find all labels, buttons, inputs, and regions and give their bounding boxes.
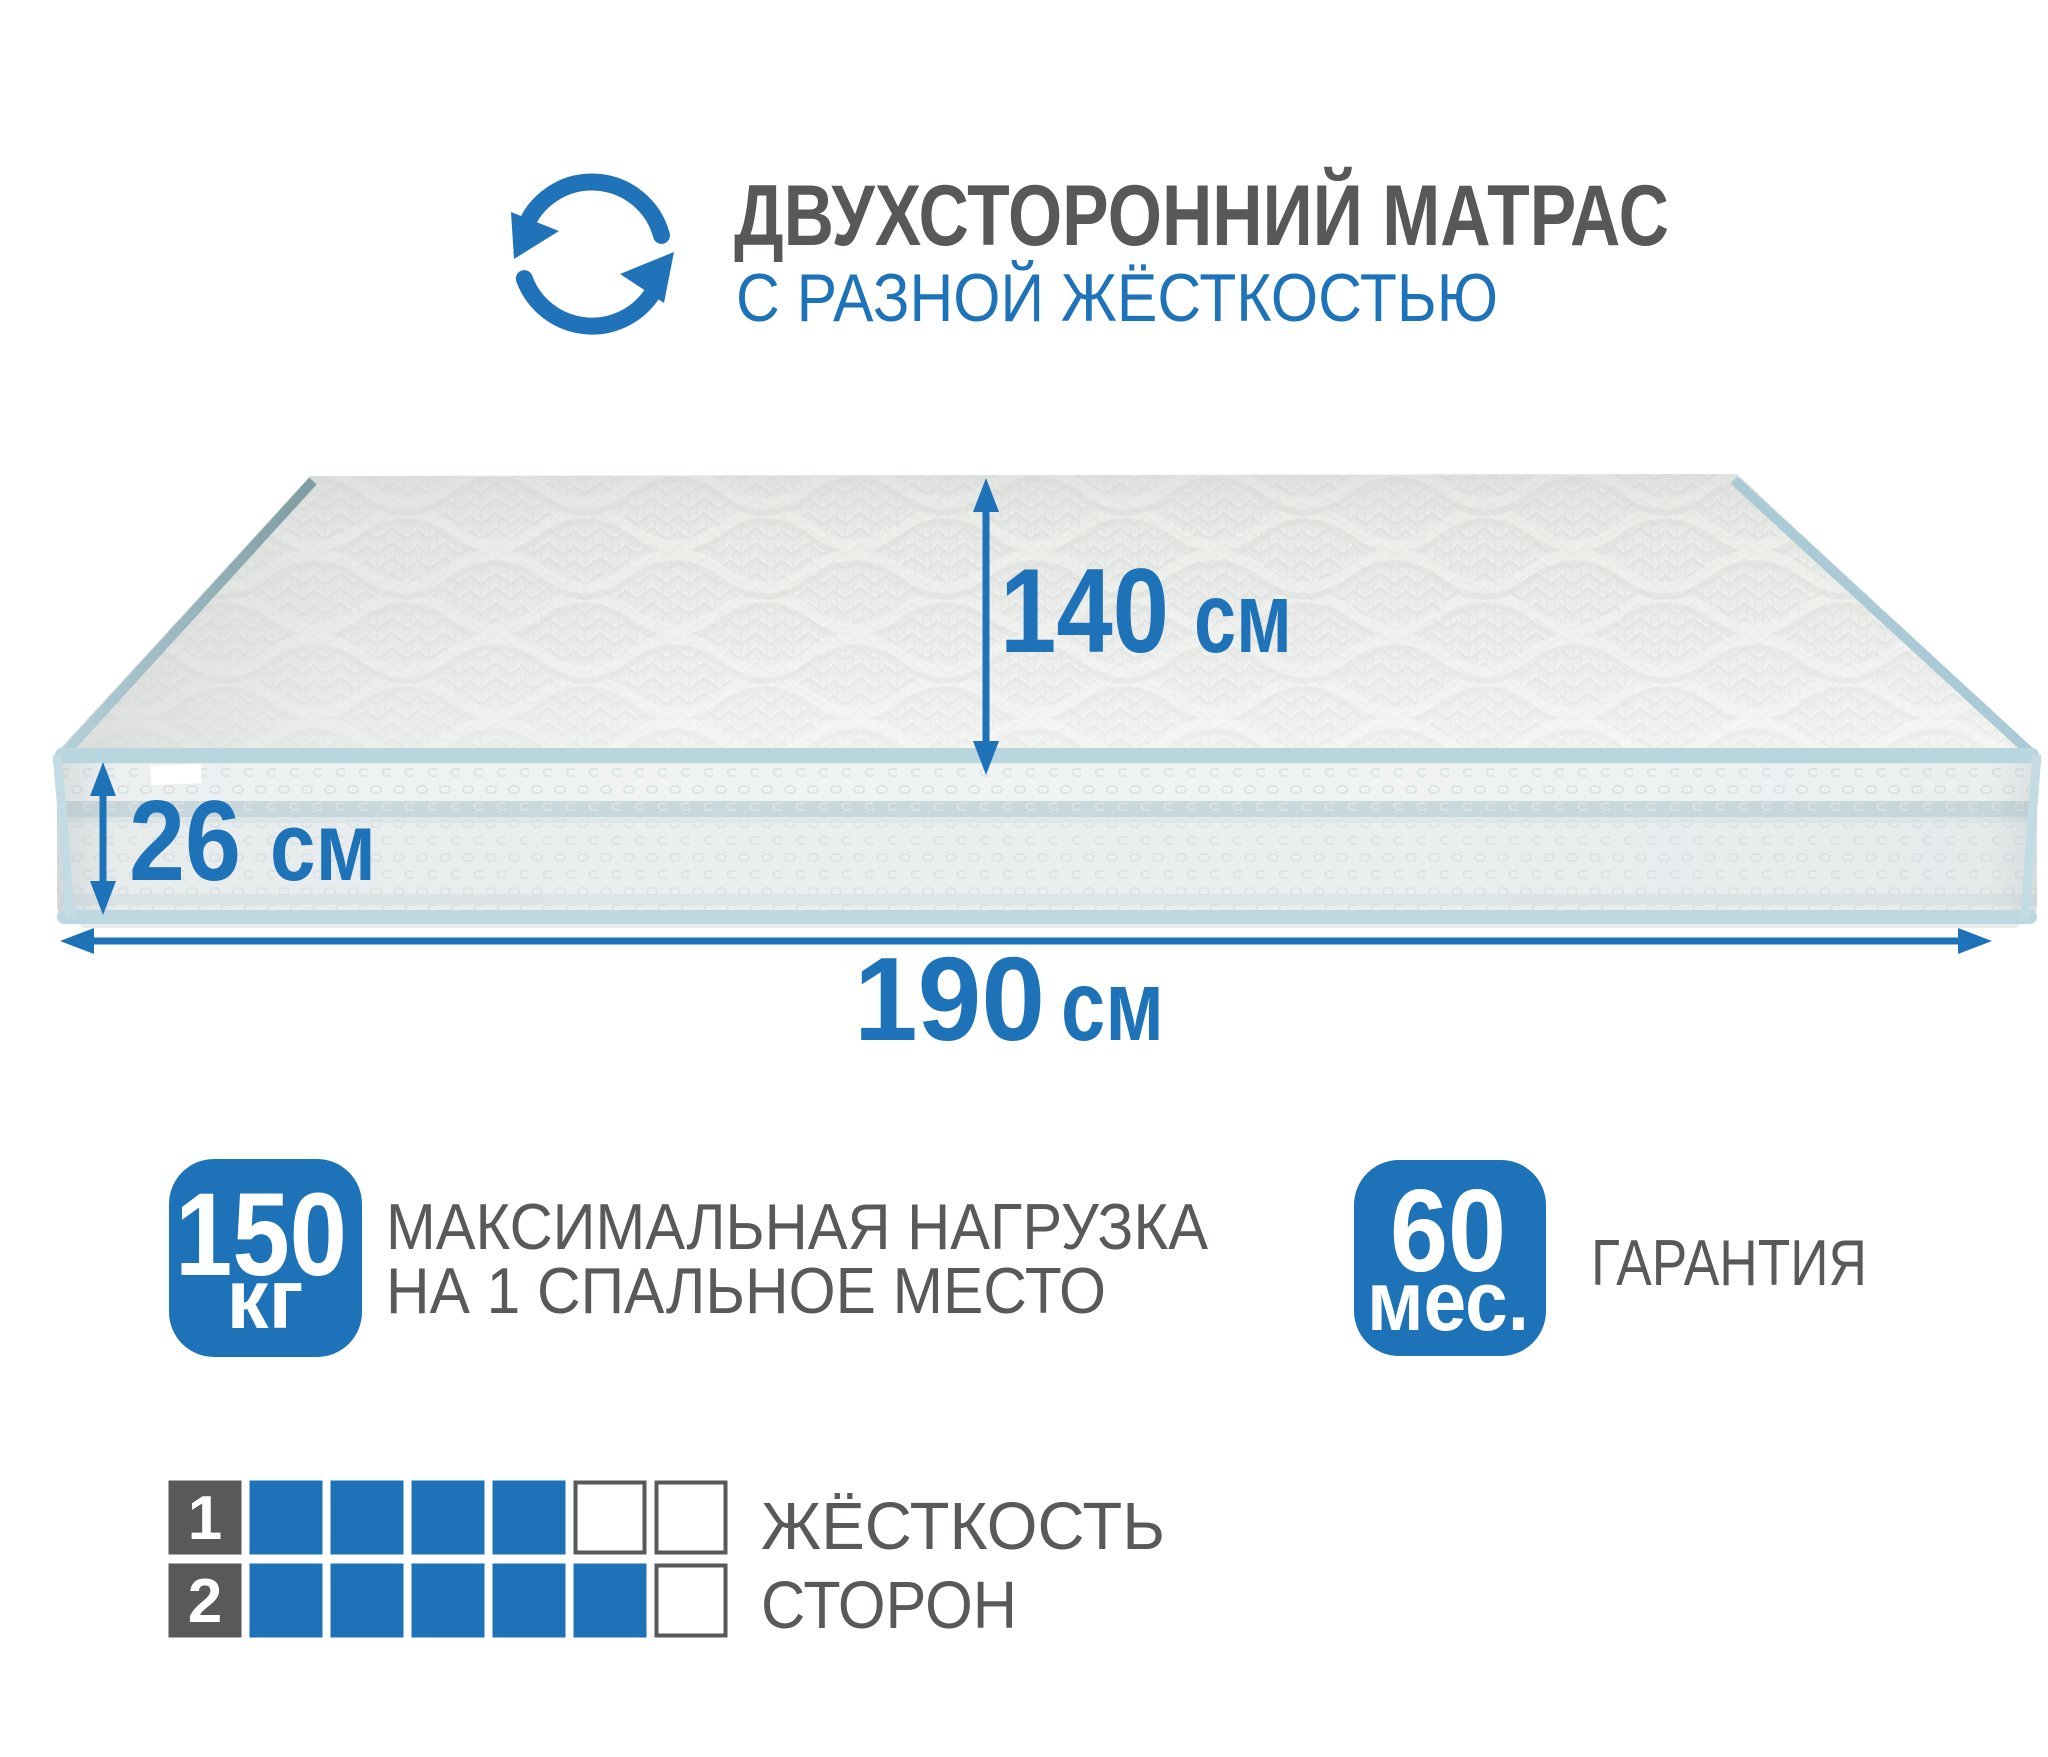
svg-text:1: 1 — [188, 1484, 222, 1553]
svg-text:кг: кг — [226, 1252, 303, 1346]
svg-text:НА 1 СПАЛЬНОЕ МЕСТО: НА 1 СПАЛЬНОЕ МЕСТО — [386, 1254, 1106, 1327]
svg-text:ГАРАНТИЯ: ГАРАНТИЯ — [1591, 1226, 1867, 1299]
svg-text:ЖЁСТКОСТЬ: ЖЁСТКОСТЬ — [761, 1489, 1165, 1564]
svg-text:140: 140 — [1000, 544, 1169, 678]
svg-text:см: см — [1194, 562, 1292, 674]
svg-text:см: см — [1061, 950, 1164, 1062]
svg-text:см: см — [270, 792, 376, 901]
svg-text:СТОРОН: СТОРОН — [761, 1568, 1017, 1643]
svg-text:190: 190 — [854, 933, 1045, 1066]
svg-text:мес.: мес. — [1367, 1254, 1529, 1348]
svg-text:26: 26 — [129, 778, 241, 905]
svg-text:ДВУХСТОРОННИЙ МАТРАС: ДВУХСТОРОННИЙ МАТРАС — [734, 167, 1669, 264]
svg-text:С РАЗНОЙ ЖЁСТКОСТЬЮ: С РАЗНОЙ ЖЁСТКОСТЬЮ — [736, 259, 1498, 336]
svg-text:2: 2 — [188, 1567, 222, 1636]
svg-text:МАКСИМАЛЬНАЯ НАГРУЗКА: МАКСИМАЛЬНАЯ НАГРУЗКА — [386, 1190, 1209, 1263]
